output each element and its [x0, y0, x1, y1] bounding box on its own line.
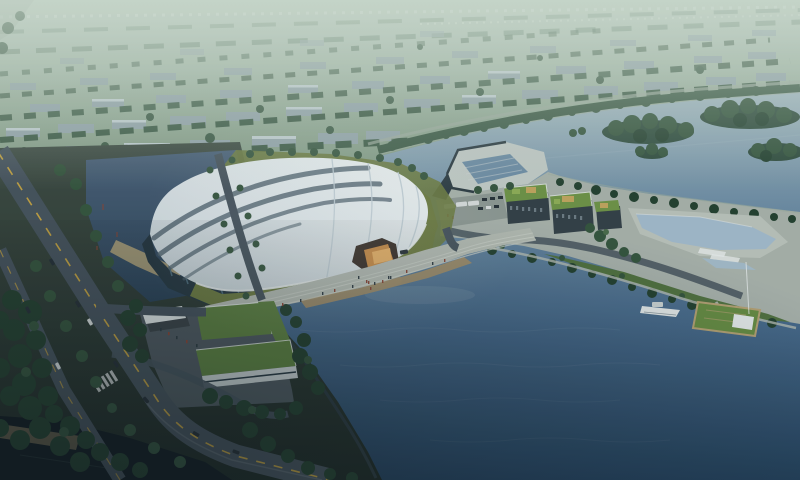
architectural-rendering	[0, 0, 800, 480]
atmosphere-overlays	[0, 0, 800, 480]
aerial-rendering-canvas	[0, 0, 800, 480]
